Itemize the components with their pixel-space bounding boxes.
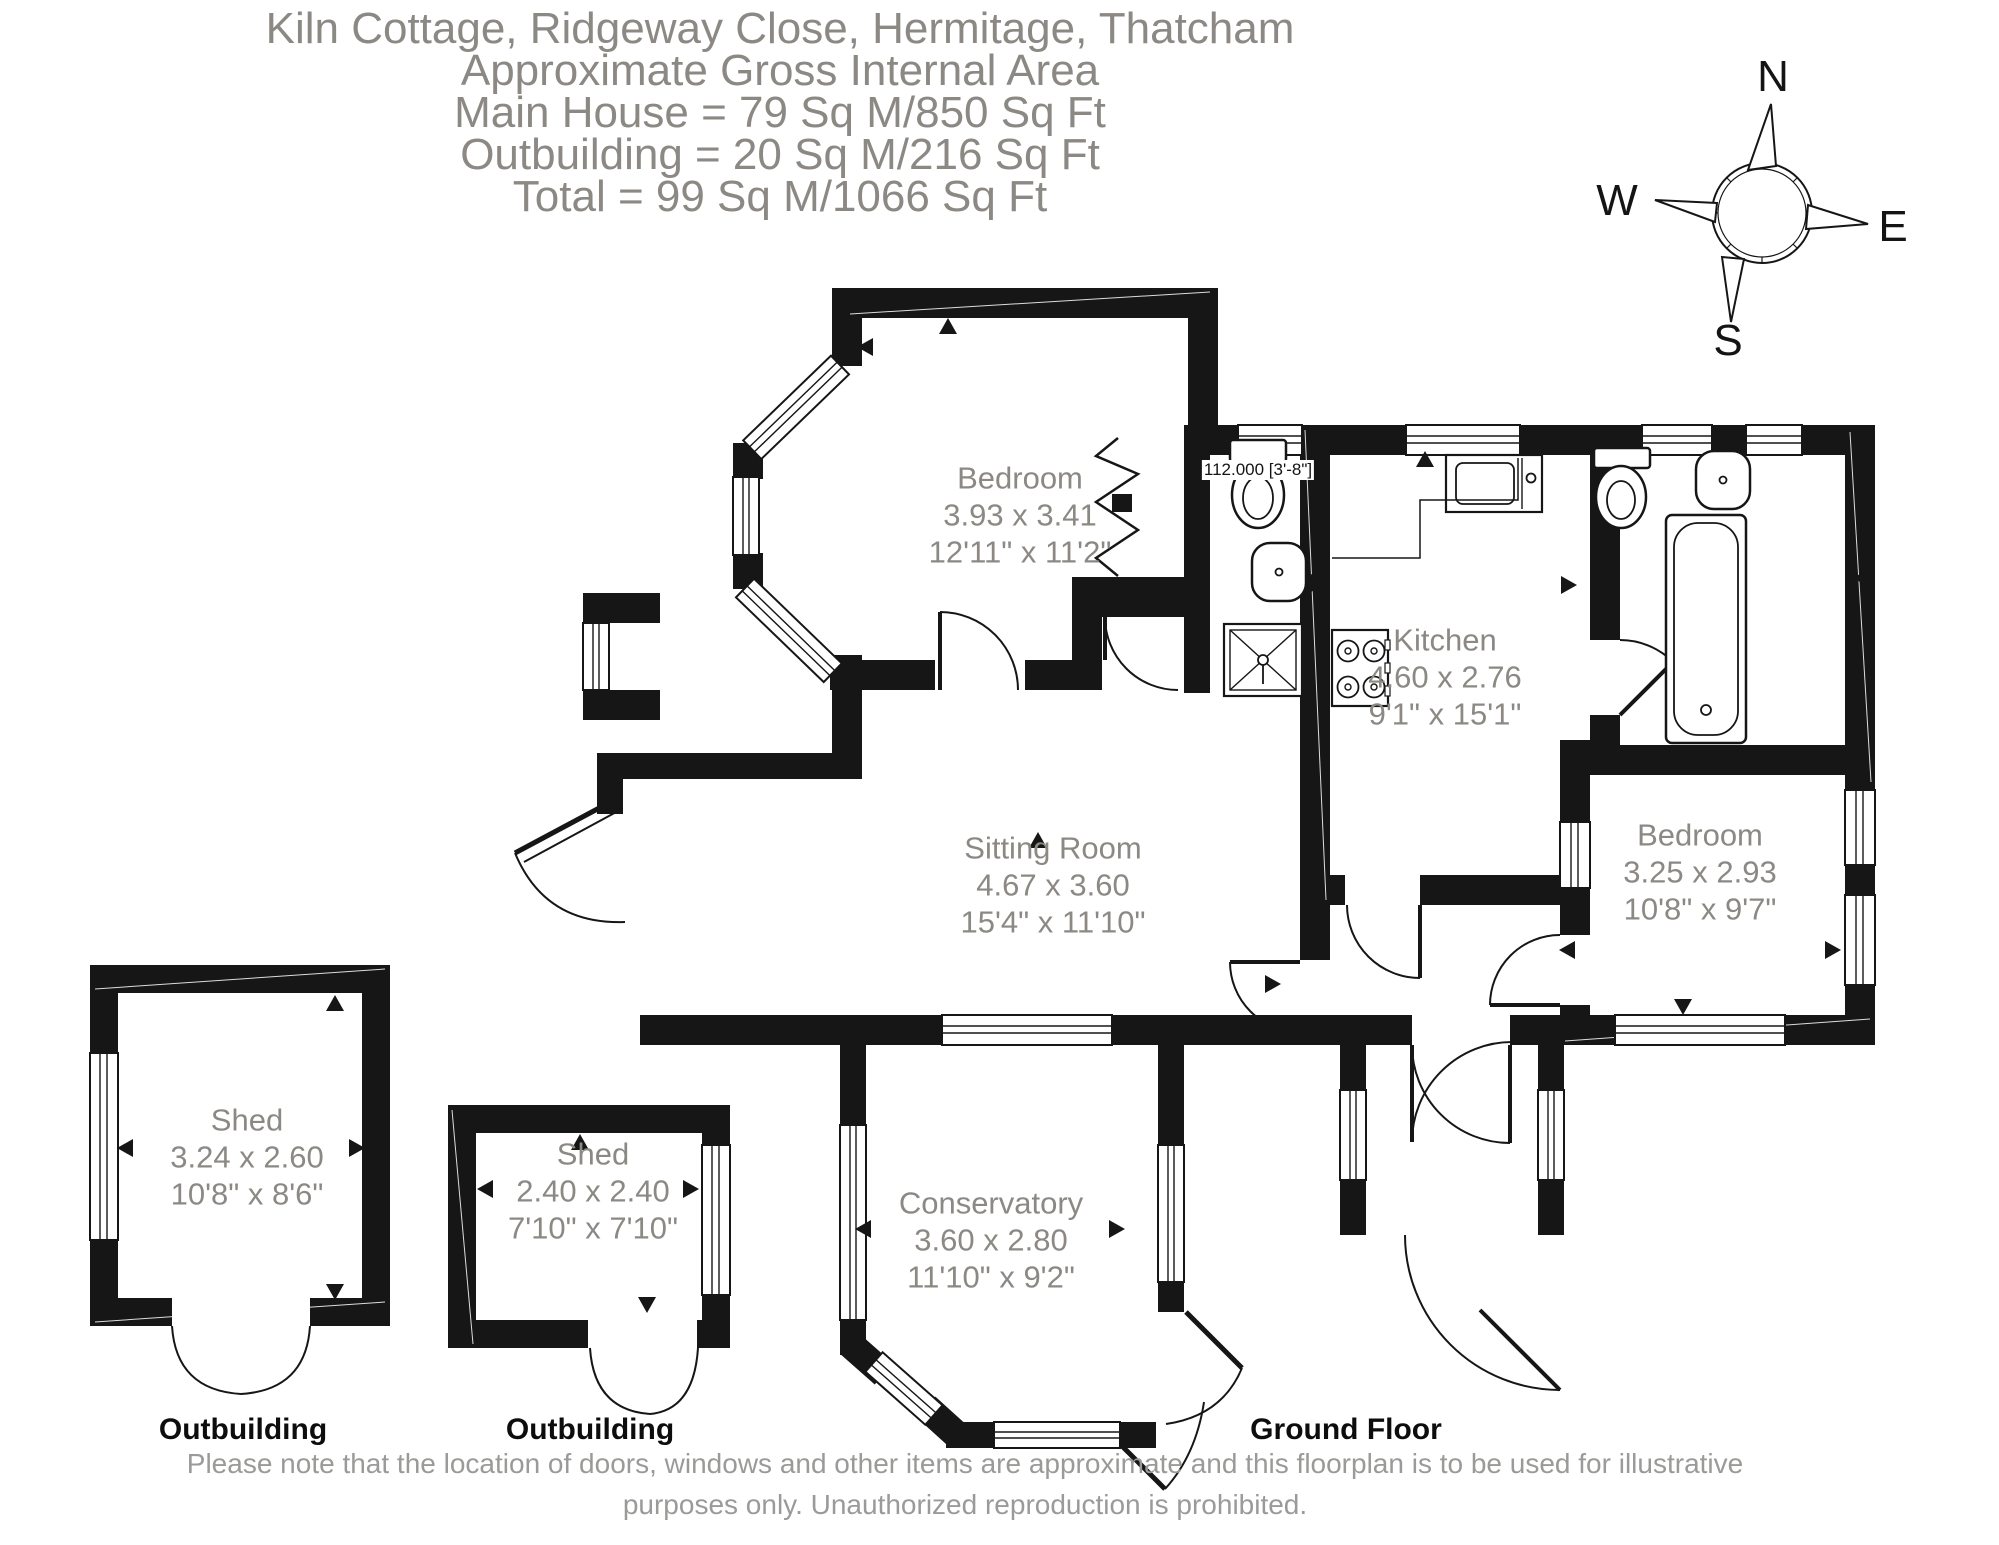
room-dim-metric: 4.67 x 3.60 <box>961 867 1146 904</box>
room-label-shed-1: Shed 3.24 x 2.60 10'8" x 8'6" <box>170 1102 323 1213</box>
window-right-wall-1 <box>1845 790 1875 865</box>
title-block: Kiln Cottage, Ridgeway Close, Hermitage,… <box>0 8 1560 218</box>
room-label-sitting-room: Sitting Room 4.67 x 3.60 15'4" x 11'10" <box>961 830 1146 941</box>
window-bay-diagonal-2 <box>736 579 842 682</box>
shower-fixture <box>1224 624 1302 696</box>
basin-fixture-shower-room <box>1252 543 1306 601</box>
room-dim-imperial: 9'1" x 15'1" <box>1368 696 1521 733</box>
bathtub-fixture <box>1666 515 1746 743</box>
title-main-house-area: Main House = 79 Sq M/850 Sq Ft <box>0 92 1560 134</box>
window-right-wall-2 <box>1845 895 1875 985</box>
room-dim-imperial: 10'8" x 9'7" <box>1623 891 1776 928</box>
door-group <box>172 612 1695 1489</box>
room-dim-metric: 2.40 x 2.40 <box>508 1173 678 1210</box>
room-name: Kitchen <box>1368 622 1521 659</box>
room-dim-imperial: 7'10" x 7'10" <box>508 1210 678 1247</box>
window-porch-right <box>1538 1090 1564 1180</box>
basin-fixture-bathroom <box>1696 451 1750 509</box>
window-conservatory-left <box>840 1125 866 1320</box>
compass-north-label: N <box>1757 52 1789 102</box>
window-bathroom-2 <box>1746 425 1802 455</box>
compass-east-label: E <box>1878 202 1907 252</box>
toilet-fixture-bathroom <box>1594 448 1650 528</box>
room-label-bedroom-2: Bedroom 3.25 x 2.93 10'8" x 9'7" <box>1623 817 1776 928</box>
room-name: Shed <box>170 1102 323 1139</box>
window-west-bay-block <box>583 623 609 690</box>
room-label-bedroom-1: Bedroom 3.93 x 3.41 12'11" x 11'2" <box>929 460 1112 571</box>
room-name: Sitting Room <box>961 830 1146 867</box>
disclaimer-line-1: Please note that the location of doors, … <box>0 1443 1930 1484</box>
window-bathroom-1 <box>1642 425 1712 455</box>
compass-south-label: S <box>1713 316 1742 366</box>
window-bedroom2-bottom <box>1615 1015 1785 1045</box>
floorplan-drawing <box>0 0 1999 1545</box>
room-dim-metric: 3.25 x 2.93 <box>1623 854 1776 891</box>
window-conservatory-right <box>1158 1145 1184 1282</box>
title-area-heading: Approximate Gross Internal Area <box>0 50 1560 92</box>
room-name: Bedroom <box>1623 817 1776 854</box>
ground-floor-label: Ground Floor <box>1250 1413 1442 1447</box>
window-shed1-left <box>90 1053 118 1240</box>
room-dim-metric: 4.60 x 2.76 <box>1368 659 1521 696</box>
toilet-fixture-shower-room <box>1230 440 1286 528</box>
compass-icon <box>1655 104 1868 322</box>
window-sitting-conservatory <box>942 1015 1112 1045</box>
room-dim-imperial: 10'8" x 8'6" <box>170 1176 323 1213</box>
wc-dimension-note: 112.000 [3'-8"] <box>1202 460 1314 480</box>
title-total-area: Total = 99 Sq M/1066 Sq Ft <box>0 176 1560 218</box>
title-address: Kiln Cottage, Ridgeway Close, Hermitage,… <box>0 8 1560 50</box>
room-name: Bedroom <box>929 460 1112 497</box>
room-dim-imperial: 15'4" x 11'10" <box>961 904 1146 941</box>
room-name: Conservatory <box>899 1185 1083 1222</box>
room-dim-metric: 3.24 x 2.60 <box>170 1139 323 1176</box>
room-dim-imperial: 11'10" x 9'2" <box>899 1259 1083 1296</box>
window-shed2-right <box>702 1145 730 1295</box>
disclaimer-block: Please note that the location of doors, … <box>0 1443 1930 1525</box>
room-label-shed-2: Shed 2.40 x 2.40 7'10" x 7'10" <box>508 1136 678 1247</box>
room-dim-imperial: 12'11" x 11'2" <box>929 534 1112 571</box>
window-bedroom2-left <box>1560 822 1590 888</box>
room-dim-metric: 3.93 x 3.41 <box>929 497 1112 534</box>
room-name: Shed <box>508 1136 678 1173</box>
window-conservatory-diagonal <box>865 1352 942 1424</box>
window-bay-diagonal-1 <box>743 356 849 459</box>
floorplan-page: Kiln Cottage, Ridgeway Close, Hermitage,… <box>0 0 1999 1545</box>
window-bay-vertical <box>733 477 759 555</box>
window-porch-left <box>1340 1090 1366 1180</box>
sink-fixture-kitchen <box>1446 455 1542 512</box>
room-label-kitchen: Kitchen 4.60 x 2.76 9'1" x 15'1" <box>1368 622 1521 733</box>
room-dim-metric: 3.60 x 2.80 <box>899 1222 1083 1259</box>
outbuilding-label-1: Outbuilding <box>159 1413 327 1447</box>
outbuilding-label-2: Outbuilding <box>506 1413 674 1447</box>
title-outbuilding-area: Outbuilding = 20 Sq M/216 Sq Ft <box>0 134 1560 176</box>
room-label-conservatory: Conservatory 3.60 x 2.80 11'10" x 9'2" <box>899 1185 1083 1296</box>
disclaimer-line-2: purposes only. Unauthorized reproduction… <box>0 1484 1930 1525</box>
compass-west-label: W <box>1596 176 1638 226</box>
window-kitchen-top <box>1406 425 1520 455</box>
